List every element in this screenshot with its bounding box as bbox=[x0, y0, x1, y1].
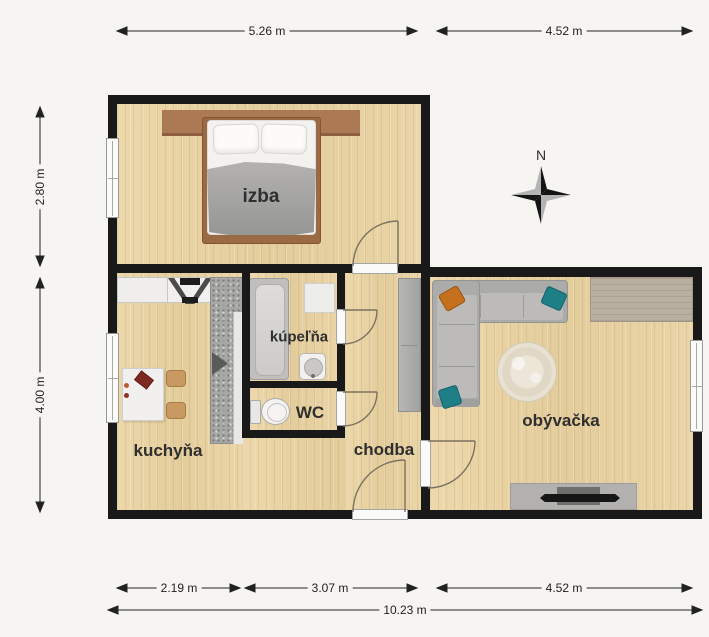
wall-bedroom-bottom-right bbox=[398, 264, 421, 273]
floor-plan: N izba kúpeľňa WC kuchyňa chodba obývačk… bbox=[0, 0, 709, 637]
bathroom-sink bbox=[299, 353, 326, 380]
dimension-left-upper: 2.80 m bbox=[33, 165, 47, 210]
living-room-label: obývačka bbox=[522, 411, 600, 431]
dimension-bottom-3: 4.52 m bbox=[542, 581, 587, 595]
bathroom-cabinet bbox=[304, 283, 335, 313]
bedroom-door-jamb bbox=[352, 263, 398, 274]
living-room-door-jamb bbox=[420, 440, 431, 487]
dimension-bottom-1: 2.19 m bbox=[157, 581, 202, 595]
wall-bottom-right bbox=[408, 510, 702, 519]
dimension-left-lower: 4.00 m bbox=[33, 373, 47, 418]
bedroom-window bbox=[106, 138, 119, 218]
cup-2 bbox=[124, 393, 129, 398]
hood-chimney bbox=[180, 278, 200, 285]
wall-bathroom-right-2 bbox=[337, 344, 345, 391]
dimension-bottom-2: 3.07 m bbox=[308, 581, 353, 595]
toilet-tank bbox=[250, 400, 261, 424]
wall-bottom-left bbox=[108, 510, 352, 519]
bed-pillow-left bbox=[212, 123, 259, 155]
wall-bathroom-wc-divider bbox=[250, 381, 337, 388]
kitchen-chair-bottom bbox=[166, 402, 186, 419]
wall-bathroom-right-1 bbox=[337, 273, 345, 309]
wall-wc-bottom bbox=[242, 430, 345, 438]
wc-label: WC bbox=[296, 403, 324, 423]
sideboard bbox=[590, 277, 693, 322]
tv-soundbar bbox=[540, 494, 620, 502]
cooktop bbox=[182, 297, 198, 303]
wall-living-top bbox=[421, 267, 702, 277]
sink-faucet bbox=[311, 374, 315, 378]
stove-hood bbox=[167, 277, 211, 303]
sofa-seat-v bbox=[437, 295, 477, 398]
kitchen-chair-top bbox=[166, 370, 186, 387]
bathroom-door-jamb bbox=[336, 309, 346, 344]
compass-north-label: N bbox=[536, 147, 546, 163]
living-room-window bbox=[690, 340, 703, 432]
wardrobe-divider bbox=[401, 345, 418, 346]
compass-icon bbox=[511, 166, 571, 224]
wall-bedroom-bottom-left bbox=[117, 264, 352, 273]
bathroom-label: kúpeľňa bbox=[270, 329, 328, 346]
round-rug bbox=[497, 342, 557, 402]
toilet-seat bbox=[267, 403, 287, 422]
kitchen-window bbox=[106, 333, 119, 423]
wall-bathroom-left bbox=[242, 273, 250, 438]
dimension-overall: 10.23 m bbox=[379, 603, 430, 617]
entrance-door-jamb bbox=[352, 509, 408, 520]
cup-1 bbox=[124, 383, 129, 388]
dimension-top-left: 5.26 m bbox=[245, 24, 290, 38]
bed-pillow-right bbox=[260, 123, 307, 155]
toilet-bowl bbox=[261, 398, 290, 425]
kitchen-label: kuchyňa bbox=[134, 441, 203, 461]
bedroom-label: izba bbox=[243, 186, 280, 208]
wc-door-jamb bbox=[336, 391, 346, 426]
hallway-wardrobe bbox=[398, 278, 421, 412]
hallway-label: chodba bbox=[354, 440, 414, 460]
wall-top bbox=[108, 95, 430, 104]
dimension-top-right: 4.52 m bbox=[542, 24, 587, 38]
